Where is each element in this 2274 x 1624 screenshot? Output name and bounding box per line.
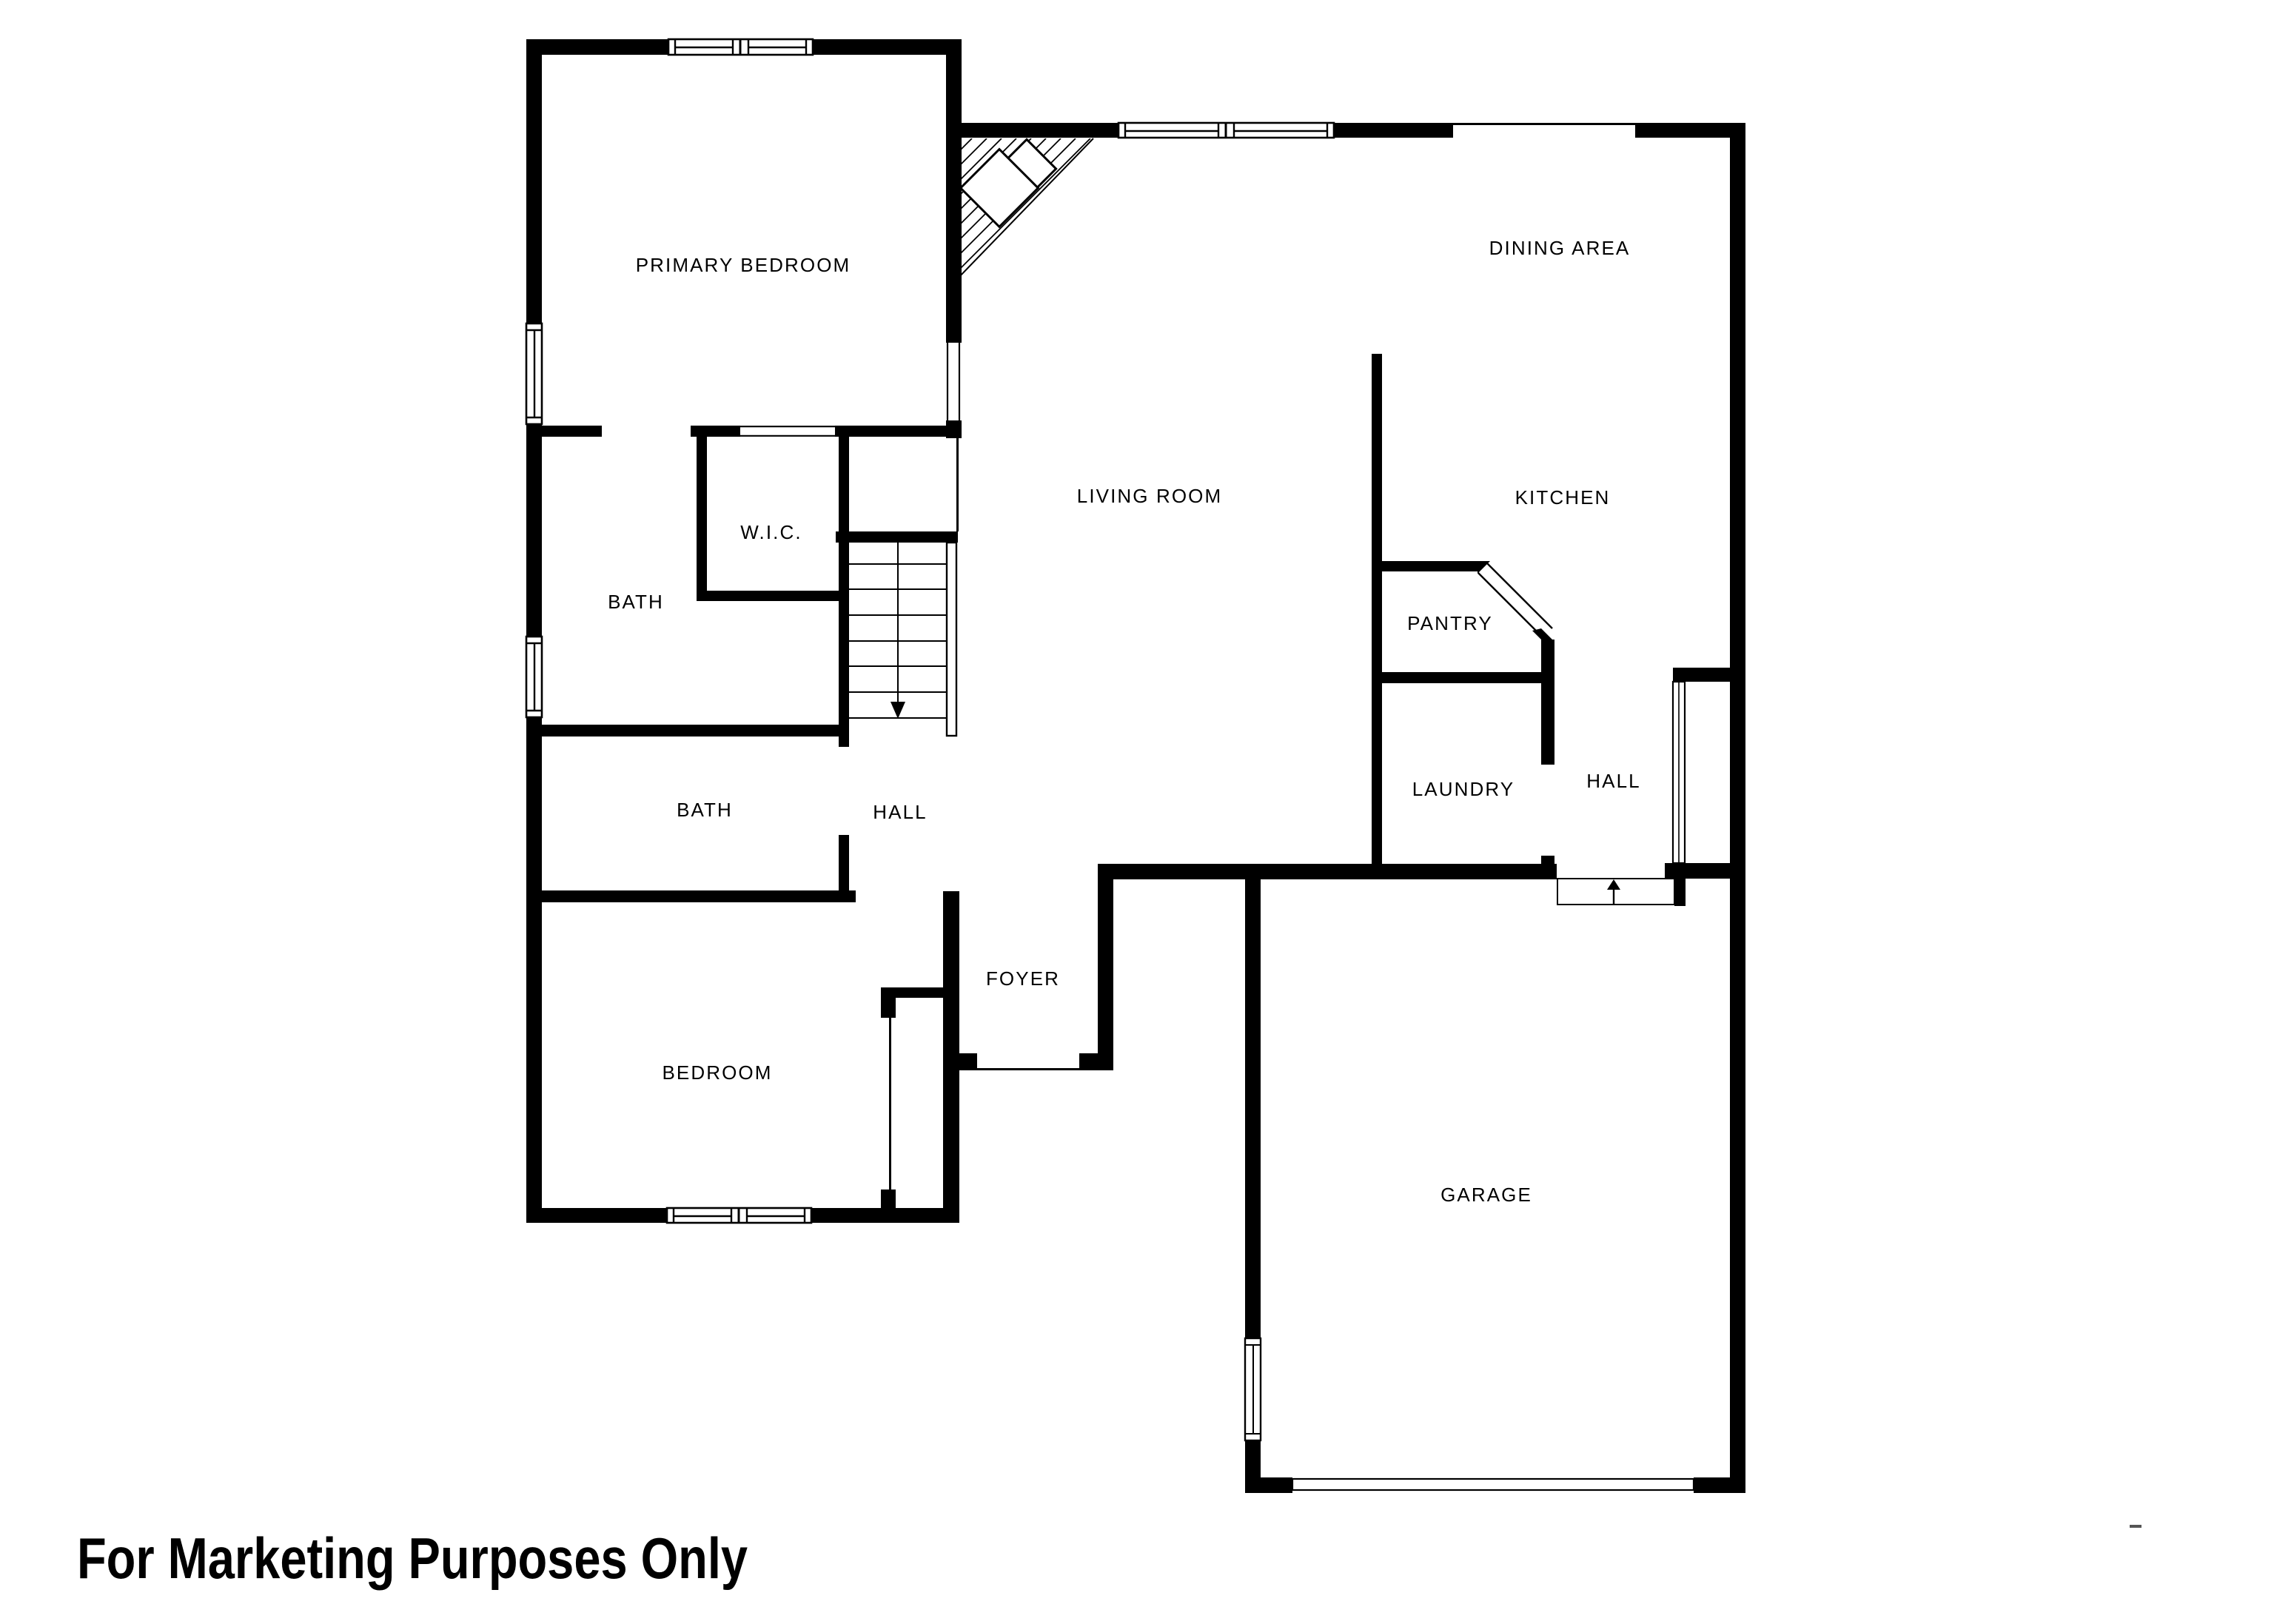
svg-text:BATH: BATH [608,591,664,613]
svg-text:LAUNDRY: LAUNDRY [1412,778,1515,800]
svg-text:PANTRY: PANTRY [1407,612,1493,634]
svg-text:HALL: HALL [1586,770,1640,792]
svg-text:KITCHEN: KITCHEN [1515,486,1611,509]
svg-text:FOYER: FOYER [986,967,1060,990]
svg-text:BATH: BATH [677,799,733,821]
svg-text:W.I.C.: W.I.C. [740,521,802,543]
svg-text:DINING AREA: DINING AREA [1489,237,1631,259]
svg-text:LIVING ROOM: LIVING ROOM [1077,485,1222,507]
svg-text:BEDROOM: BEDROOM [662,1061,772,1084]
svg-text:HALL: HALL [873,801,927,823]
svg-text:PRIMARY BEDROOM: PRIMARY BEDROOM [636,254,851,276]
svg-text:For Marketing Purposes Only: For Marketing Purposes Only [77,1526,748,1591]
svg-text:GARAGE: GARAGE [1440,1184,1532,1206]
